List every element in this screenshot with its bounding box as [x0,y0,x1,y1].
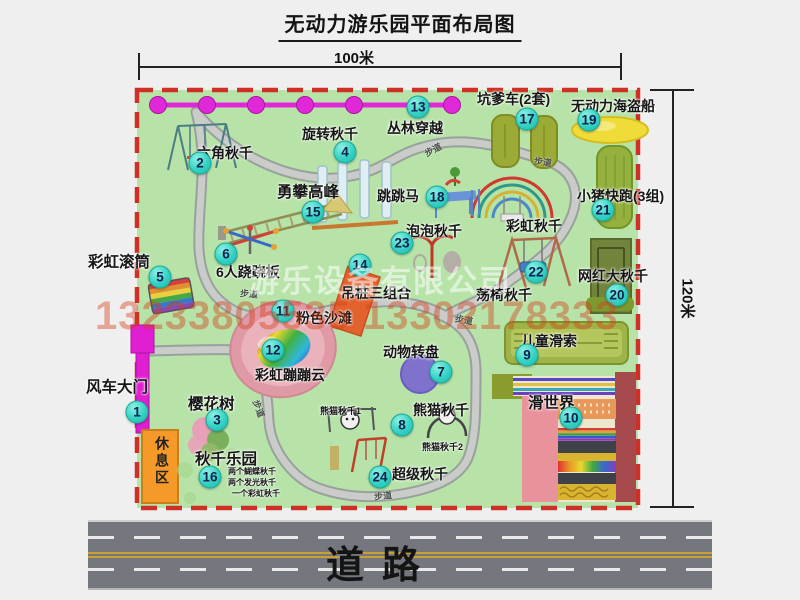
poi-badge-5: 5 [149,266,172,289]
swing-park-line-3: 一个彩虹秋千 [232,488,280,499]
poi-badge-14: 14 [348,254,371,277]
poi-label-rainbow-roller: 彩虹滚筒 [88,250,150,272]
poi-badge-2: 2 [189,152,212,175]
poi-badge-1: 1 [126,401,149,424]
poi-badge-18: 18 [425,186,448,209]
page-title: 无动力游乐园平面布局图 [279,8,522,42]
poi-badge-17: 17 [515,108,538,131]
poi-label-jungle-crossing: 丛林穿越 [387,118,443,138]
poi-badge-23: 23 [390,232,413,255]
dimension-tick-top-right [620,53,622,80]
poi-badge-8: 8 [391,414,414,437]
poi-label-bubble-swing: 泡泡秋千 [406,221,462,241]
swing-park-line-2: 两个发光秋千 [228,477,276,488]
dimension-line-right [672,90,674,508]
poi-badge-6: 6 [215,243,238,266]
poi-badge-22: 22 [524,261,547,284]
poi-badge-11: 11 [272,300,295,323]
poi-label-jumping-horse: 跳跳马 [377,186,419,206]
poi-label-animal-turntable: 动物转盘 [383,342,439,362]
path-label-5: 步道 [373,488,392,503]
poi-label-windmill-gate: 风车大门 [86,375,148,397]
poi-badge-9: 9 [516,344,539,367]
swing-park-line-1: 两个蝴蝶秋千 [228,466,276,477]
poi-badge-10: 10 [559,407,582,430]
rest-area-label: 休息区 [148,436,172,500]
poi-badge-7: 7 [430,361,453,384]
screenshot-stage: 无动力游乐园平面布局图 100米 120米 [0,0,800,600]
poi-label-piggy-run: 小猪快跑(3组) [577,186,664,206]
poi-label-rainbow-cloud: 彩虹蹦蹦云 [255,365,325,385]
poi-badge-21: 21 [591,199,614,222]
poi-label-super-swing: 超级秋千 [392,464,448,484]
dimension-label-height: 120米 [678,267,699,331]
poi-label-panda-swing: 熊猫秋千 [413,400,469,420]
poi-label-panda-swing-2: 熊猫秋千2 [422,440,463,453]
path-label-2: 步道 [533,154,553,169]
poi-badge-13: 13 [406,96,429,119]
path-label-3: 步道 [239,286,258,301]
dimension-label-width: 100米 [334,47,374,68]
poi-badge-20: 20 [605,284,628,307]
poi-label-pink-beach: 粉色沙滩 [296,308,352,328]
poi-badge-15: 15 [301,201,324,224]
poi-label-pit-cars: 坑爹车(2套) [477,89,550,109]
dimension-tick-top-left [138,53,140,80]
road-label: 道路 [326,534,438,589]
poi-badge-4: 4 [334,141,357,164]
dimension-line-top [139,66,621,68]
poi-badge-19: 19 [577,109,600,132]
poi-badge-12: 12 [261,339,284,362]
poi-label-climbing-peak: 勇攀高峰 [277,180,339,202]
poi-badge-3: 3 [206,409,229,432]
dimension-tick-right-top [650,89,694,91]
poi-label-hanging-piles: 吊桩三组合 [341,283,411,303]
poi-badge-24: 24 [368,466,391,489]
poi-label-rainbow-swing: 彩虹秋千 [506,216,562,236]
dimension-tick-right-bottom [650,506,694,508]
poi-badge-16: 16 [198,466,221,489]
poi-label-panda-swing-1: 熊猫秋千1 [320,404,361,417]
poi-label-rocking-chair-swing: 荡椅秋千 [476,285,532,305]
